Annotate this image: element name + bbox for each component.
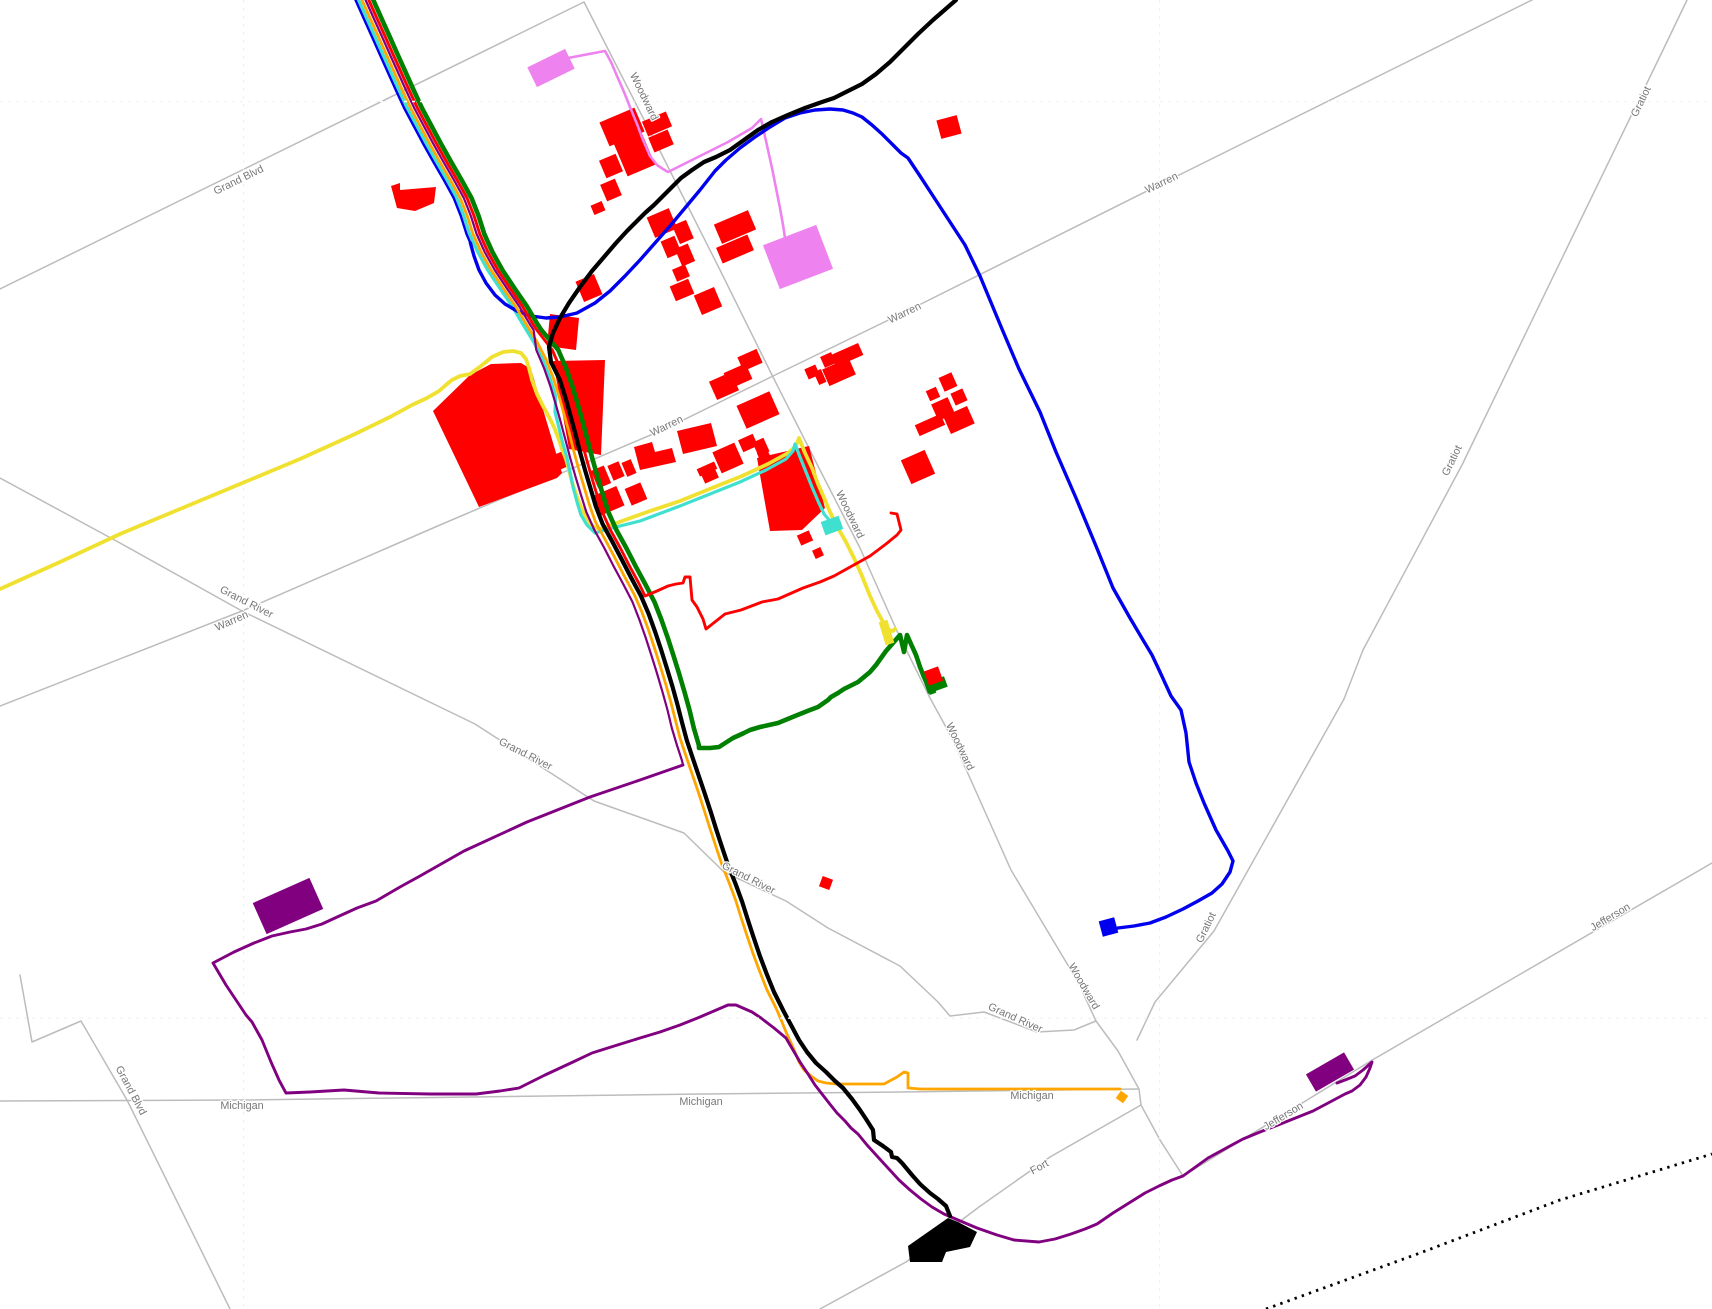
svg-text:Michigan: Michigan [679, 1096, 722, 1108]
svg-text:Michigan: Michigan [1010, 1090, 1053, 1102]
svg-text:Michigan: Michigan [220, 1100, 263, 1112]
